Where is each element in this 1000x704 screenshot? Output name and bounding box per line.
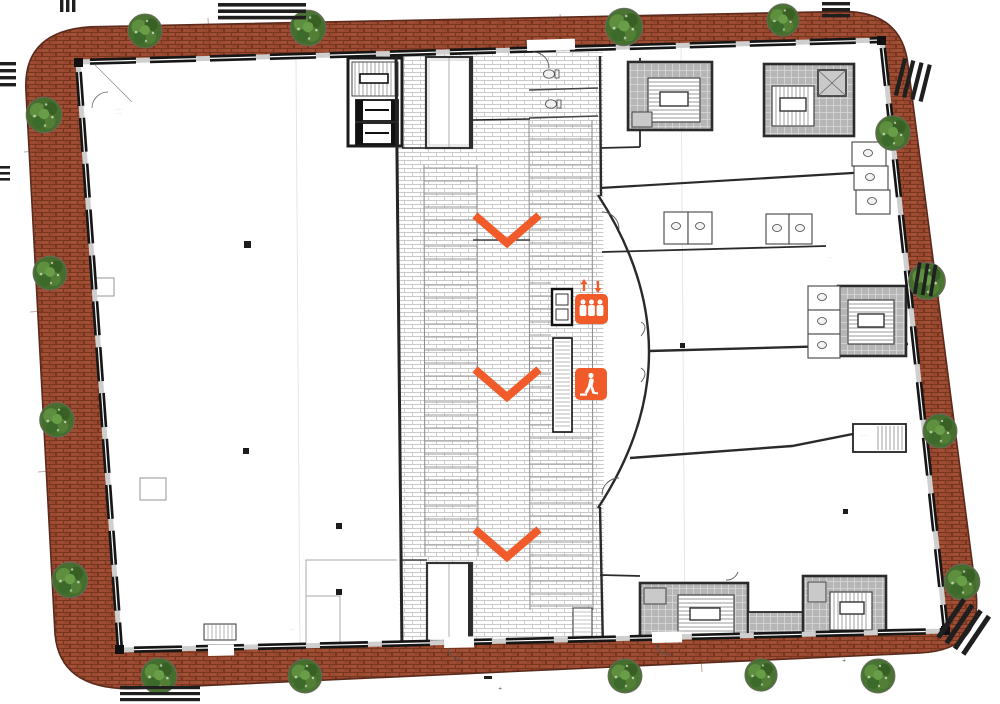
escalator-strip	[553, 338, 572, 432]
stair-room-east-edge	[853, 424, 906, 452]
escalator-person-icon	[575, 368, 607, 400]
survey-mark: +	[498, 686, 502, 692]
room-label: ··· ···	[860, 433, 867, 437]
floor-plan-canvas: ····· ·· ·· ···· ···· ··· ··· ·· ····· ·…	[0, 0, 1000, 704]
small-stair-corridor-south	[573, 608, 592, 640]
stair-lift-core-northwest	[348, 58, 402, 146]
small-stair-south	[204, 624, 236, 640]
corridor-void-north	[426, 57, 473, 148]
crosswalk-top-right	[822, 2, 850, 17]
corridor-void-south	[427, 563, 472, 641]
corridor-lift-block	[552, 289, 572, 325]
room-label: ·····	[828, 255, 833, 259]
survey-mark: +	[842, 658, 846, 664]
crosswalk-left-upper	[0, 62, 16, 86]
toilet-icon	[544, 70, 555, 78]
core-mideast	[838, 286, 906, 356]
road-mark-small	[484, 676, 492, 679]
room-label: ·· ··	[826, 591, 831, 595]
room-label: ··· ··	[766, 71, 772, 75]
core-northeast-b	[764, 64, 854, 136]
building-interior	[78, 40, 946, 696]
crosswalk-top-left	[60, 0, 75, 12]
crosswalk-left-mid	[0, 166, 10, 181]
room-label: ·· ····	[115, 111, 122, 115]
core-northeast-a	[628, 62, 712, 130]
toilet-icon	[546, 100, 557, 108]
floor-plan-drawing: ····· ·· ·· ···· ···· ··· ··· ·· ····· ·…	[0, 0, 1000, 704]
crosswalk-bottom-left	[120, 686, 200, 701]
room-label: ···· ···	[74, 295, 82, 299]
room-label: ·····	[290, 627, 295, 631]
